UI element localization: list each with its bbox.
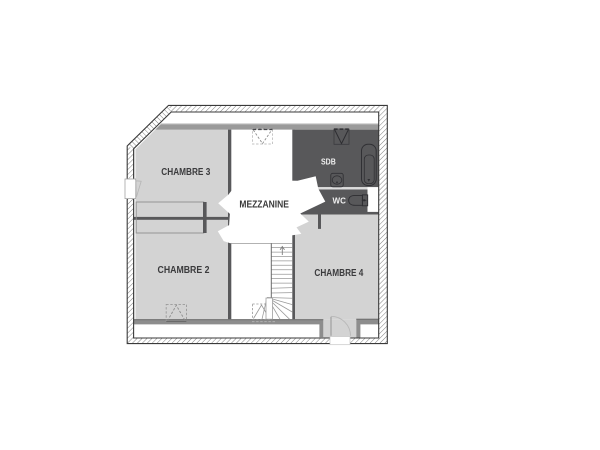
svg-text:CHAMBRE 2: CHAMBRE 2 <box>158 265 210 276</box>
svg-text:CHAMBRE 4: CHAMBRE 4 <box>314 268 363 279</box>
svg-text:CHAMBRE 3: CHAMBRE 3 <box>161 167 210 178</box>
svg-text:SDB: SDB <box>321 157 336 166</box>
svg-text:MEZZANINE: MEZZANINE <box>239 199 289 211</box>
svg-text:WC: WC <box>333 196 346 206</box>
